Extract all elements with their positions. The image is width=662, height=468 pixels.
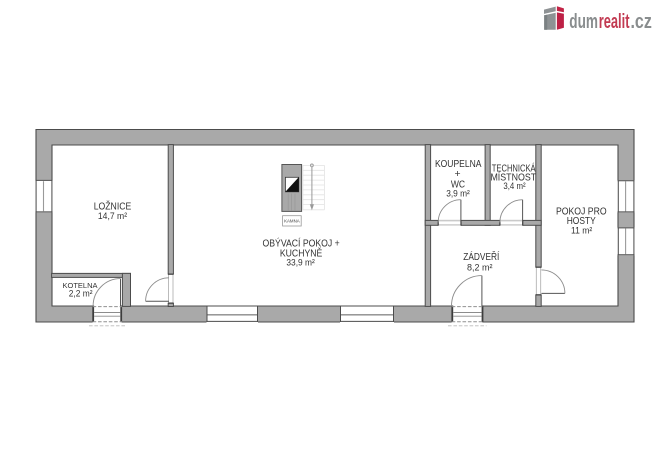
svg-text:11 m²: 11 m² xyxy=(571,226,592,236)
svg-text:14,7 m²: 14,7 m² xyxy=(98,211,127,221)
svg-text:realit: realit xyxy=(599,11,630,33)
svg-text:+: + xyxy=(455,169,461,180)
svg-text:3,9 m²: 3,9 m² xyxy=(446,189,470,199)
svg-text:.cz: .cz xyxy=(631,11,652,33)
svg-text:OBÝVACÍ POKOJ +: OBÝVACÍ POKOJ + xyxy=(263,237,340,250)
svg-text:8,2 m²: 8,2 m² xyxy=(467,262,493,272)
svg-text:ZÁDVEŘÍ: ZÁDVEŘÍ xyxy=(463,250,499,263)
svg-text:dum: dum xyxy=(569,11,598,33)
svg-text:33,9 m²: 33,9 m² xyxy=(286,258,314,268)
svg-text:2,2 m²: 2,2 m² xyxy=(69,289,93,299)
svg-text:KAMNA: KAMNA xyxy=(284,219,300,224)
svg-text:3,4 m²: 3,4 m² xyxy=(503,181,525,191)
